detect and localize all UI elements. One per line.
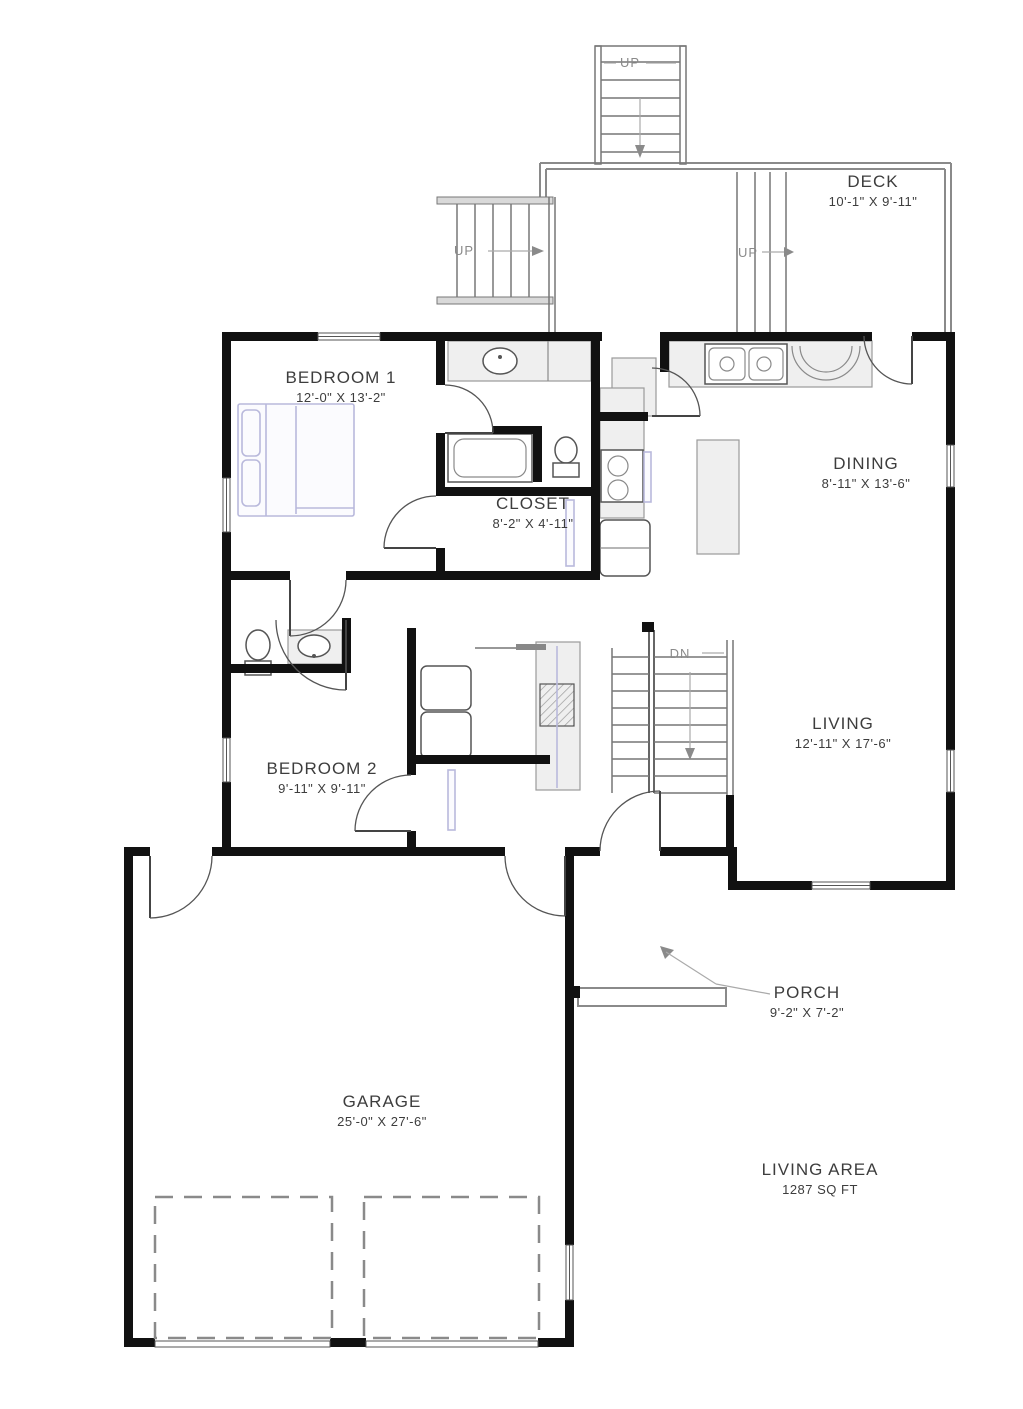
room-name: DINING: [822, 454, 911, 474]
sink-icon: [483, 348, 517, 374]
room-label-closet: CLOSET 8'-2" X 4'-11": [493, 494, 574, 531]
stair-label-up-top: UP: [620, 55, 640, 70]
stair-label-up-deck: UP: [738, 245, 758, 260]
stair-label-dn: DN: [670, 646, 691, 661]
room-label-garage: GARAGE 25'-0" X 27'-6": [337, 1092, 427, 1129]
room-label-dining: DINING 8'-11" X 13'-6": [822, 454, 911, 491]
living-area-value: 1287 SQ FT: [762, 1182, 879, 1197]
room-dims: 25'-0" X 27'-6": [337, 1114, 427, 1129]
bathtub-icon: [448, 434, 532, 482]
refrigerator-icon: [600, 520, 650, 576]
dryer-icon: [421, 712, 471, 758]
garage-door: [155, 1341, 330, 1347]
room-label-bedroom1: BEDROOM 1 12'-0" X 13'-2": [285, 368, 396, 405]
shelf: [516, 644, 546, 650]
room-name: DECK: [829, 172, 918, 192]
laundry-utility: [421, 642, 580, 790]
closet-rod: [448, 770, 455, 830]
room-name: BEDROOM 1: [285, 368, 396, 388]
room-name: GARAGE: [337, 1092, 427, 1112]
counter-strip: [644, 452, 651, 502]
toilet-icon: [553, 437, 579, 477]
kitchen-sink-icon: [705, 344, 787, 384]
stair-left: [437, 197, 555, 332]
room-name: LIVING: [795, 714, 891, 734]
room-label-bedroom2: BEDROOM 2 9'-11" X 9'-11": [266, 759, 377, 796]
room-dims: 12'-0" X 13'-2": [285, 390, 396, 405]
room-name: CLOSET: [493, 494, 574, 514]
bathroom1-vanity: [448, 341, 591, 381]
room-dims: 9'-11" X 9'-11": [266, 781, 377, 796]
room-label-deck: DECK 10'-1" X 9'-11": [829, 172, 918, 209]
room-label-porch: PORCH 9'-2" X 7'-2": [770, 983, 844, 1020]
room-dims: 10'-1" X 9'-11": [829, 194, 918, 209]
room-name: BEDROOM 2: [266, 759, 377, 779]
room-dims: 12'-11" X 17'-6": [795, 736, 891, 751]
room-label-living: LIVING 12'-11" X 17'-6": [795, 714, 891, 751]
stove-icon: [601, 450, 651, 502]
room-dims: 8'-11" X 13'-6": [822, 476, 911, 491]
stair-label-up-left: UP: [454, 243, 474, 258]
floor-plan: DECK 10'-1" X 9'-11" BEDROOM 1 12'-0" X …: [0, 0, 1023, 1409]
living-area-label: LIVING AREA 1287 SQ FT: [762, 1160, 879, 1197]
sink-icon: [298, 635, 330, 657]
living-area-title: LIVING AREA: [762, 1160, 879, 1180]
washer-icon: [421, 666, 471, 710]
bed-icon: [238, 404, 354, 516]
pillow-icon: [242, 460, 260, 506]
porch-slab: [570, 986, 726, 1006]
kitchen-island: [697, 440, 739, 554]
room-dims: 8'-2" X 4'-11": [493, 516, 574, 531]
porch-leader: [660, 946, 770, 994]
garage-bays: [155, 1197, 539, 1338]
floor-plan-svg: [0, 0, 1023, 1409]
room-dims: 9'-2" X 7'-2": [770, 1005, 844, 1020]
garage-door: [366, 1341, 538, 1347]
stair-top: [595, 46, 686, 164]
room-name: PORCH: [770, 983, 844, 1003]
pillow-icon: [242, 410, 260, 456]
